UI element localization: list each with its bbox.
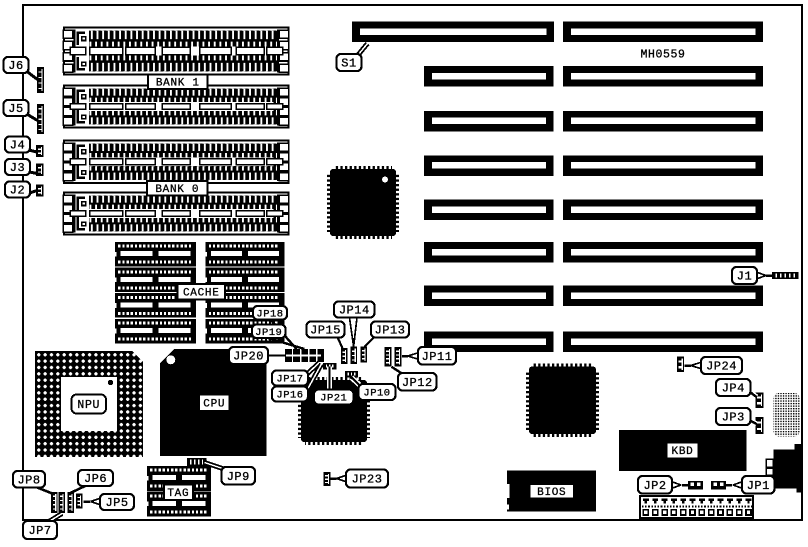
svg-text:JP11: JP11 bbox=[422, 350, 453, 364]
svg-text:S1: S1 bbox=[341, 57, 356, 71]
svg-text:JP13: JP13 bbox=[375, 324, 406, 338]
svg-text:BIOS: BIOS bbox=[537, 487, 566, 499]
svg-text:JP7: JP7 bbox=[28, 524, 51, 538]
svg-text:CACHE: CACHE bbox=[183, 288, 220, 300]
svg-text:BANK 0: BANK 0 bbox=[155, 184, 199, 196]
svg-text:JP1: JP1 bbox=[747, 479, 770, 493]
svg-text:JP2: JP2 bbox=[643, 479, 666, 493]
svg-text:J1: J1 bbox=[737, 270, 752, 284]
svg-text:JP8: JP8 bbox=[17, 473, 40, 487]
svg-text:JP14: JP14 bbox=[339, 304, 370, 318]
svg-text:J3: J3 bbox=[10, 161, 25, 175]
svg-text:J2: J2 bbox=[10, 184, 25, 198]
svg-text:J4: J4 bbox=[10, 139, 25, 153]
svg-text:JP9: JP9 bbox=[227, 470, 250, 484]
svg-text:JP5: JP5 bbox=[105, 496, 128, 510]
svg-text:KBD: KBD bbox=[672, 446, 694, 458]
svg-text:MH0559: MH0559 bbox=[640, 49, 685, 62]
svg-text:JP19: JP19 bbox=[255, 327, 282, 339]
svg-text:J6: J6 bbox=[8, 59, 23, 73]
svg-text:JP17: JP17 bbox=[276, 374, 303, 386]
svg-text:JP4: JP4 bbox=[722, 382, 745, 396]
svg-text:JP18: JP18 bbox=[256, 308, 283, 320]
svg-text:CPU: CPU bbox=[203, 399, 225, 411]
svg-text:JP21: JP21 bbox=[320, 393, 347, 405]
svg-text:TAG: TAG bbox=[167, 488, 189, 500]
svg-text:JP3: JP3 bbox=[722, 411, 745, 425]
svg-text:JP12: JP12 bbox=[402, 376, 433, 390]
svg-text:JP24: JP24 bbox=[706, 360, 737, 374]
svg-text:J5: J5 bbox=[8, 102, 23, 116]
svg-text:JP10: JP10 bbox=[363, 388, 390, 400]
svg-text:JP20: JP20 bbox=[233, 350, 264, 364]
svg-text:JP23: JP23 bbox=[352, 473, 383, 487]
svg-text:JP15: JP15 bbox=[310, 324, 341, 338]
svg-text:NPU: NPU bbox=[77, 399, 100, 412]
svg-text:JP6: JP6 bbox=[84, 472, 107, 486]
svg-text:JP16: JP16 bbox=[276, 390, 303, 402]
svg-text:BANK 1: BANK 1 bbox=[156, 78, 200, 90]
